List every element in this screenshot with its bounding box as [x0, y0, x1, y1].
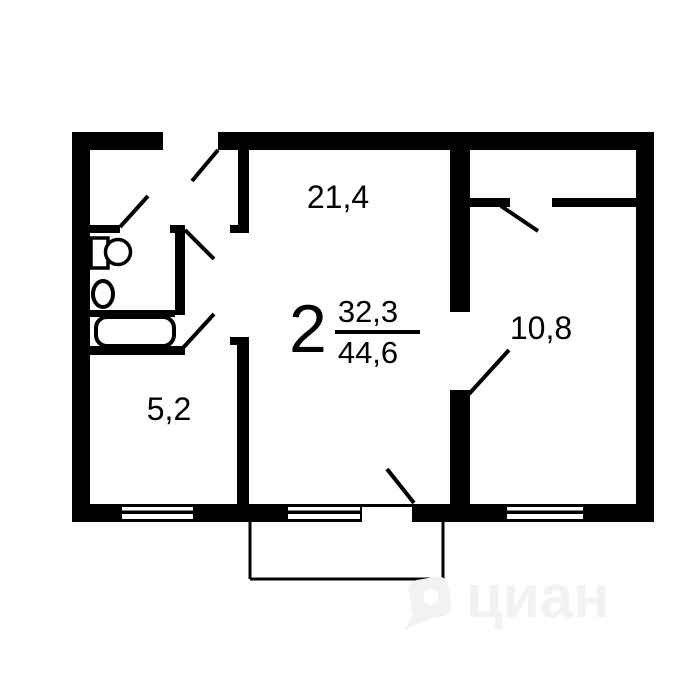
windows: [122, 504, 583, 522]
bedroom-area-label: 10,8: [510, 310, 572, 346]
wall-wc-top-stub: [170, 225, 185, 233]
toilet-icon: [93, 281, 113, 307]
balcony-door-swing-icon: [387, 469, 414, 503]
entry-door-swing-icon: [192, 150, 218, 181]
wall-bath-right: [175, 233, 185, 315]
wall-hall-lower: [237, 337, 249, 504]
wall-right: [636, 132, 654, 522]
window-icon: [507, 504, 583, 522]
room-count-label: 2: [289, 291, 327, 367]
watermark: циан: [404, 563, 609, 630]
living-area-label: 32,3: [338, 294, 398, 329]
apartment-summary: 2 32,3 44,6: [289, 291, 420, 370]
floor-plan: 21,4 10,8 5,2 2 32,3 44,6 циан: [0, 0, 700, 700]
cian-logo-icon: [404, 575, 453, 630]
wall-top-main: [218, 132, 654, 150]
hall-door-swing-icon: [185, 230, 214, 259]
wall-wc-top: [90, 225, 120, 233]
wall-hall-lower-foot: [230, 337, 238, 345]
fraction-bar: [335, 330, 420, 334]
balcony-door-opening: [362, 504, 412, 522]
wall-left: [72, 132, 90, 522]
watermark-text: циан: [466, 563, 609, 630]
kitchen-area-label: 5,2: [147, 391, 191, 427]
bathroom-fixtures: [91, 238, 174, 346]
total-area-label: 44,6: [338, 335, 398, 370]
floor-plan-drawing: 21,4 10,8 5,2 2 32,3 44,6 циан: [0, 0, 700, 700]
wall-bedroom-upper: [450, 150, 470, 312]
wall-hall-upper-foot: [230, 225, 239, 233]
bath-door-swing-icon: [182, 314, 214, 349]
bedroom-door-swing-icon: [469, 350, 509, 394]
wc-door-swing-icon: [120, 196, 148, 227]
wall-bedroom-lower: [450, 390, 470, 504]
living-room-area-label: 21,4: [307, 179, 369, 215]
bathtub-icon: [96, 317, 174, 346]
wall-closet-right: [552, 198, 654, 207]
sink-bowl-icon: [106, 240, 131, 265]
balcony-outline: [250, 522, 443, 579]
closet-door-swing-icon: [501, 206, 538, 231]
window-icon: [288, 504, 360, 522]
window-icon: [122, 504, 193, 522]
wall-hall-upper: [238, 150, 249, 233]
